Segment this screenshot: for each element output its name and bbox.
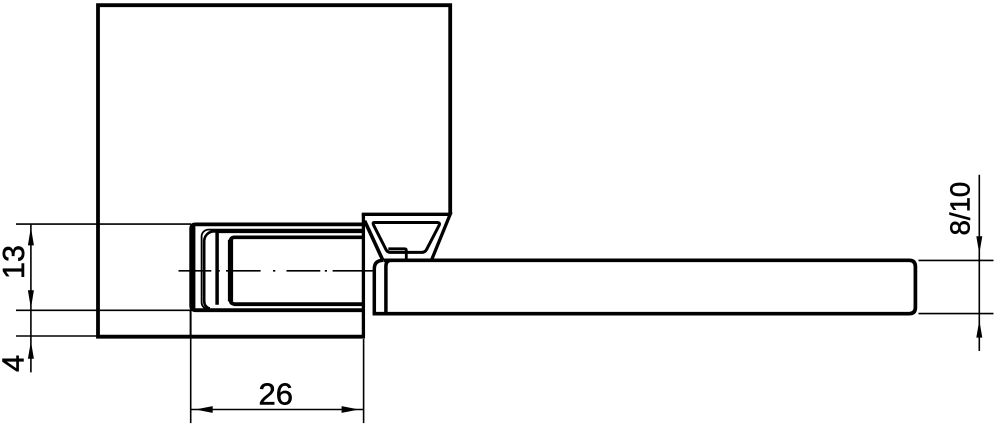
- svg-text:8/10: 8/10: [945, 182, 976, 236]
- svg-text:13: 13: [0, 245, 31, 279]
- svg-text:4: 4: [0, 355, 31, 372]
- svg-text:26: 26: [259, 377, 293, 412]
